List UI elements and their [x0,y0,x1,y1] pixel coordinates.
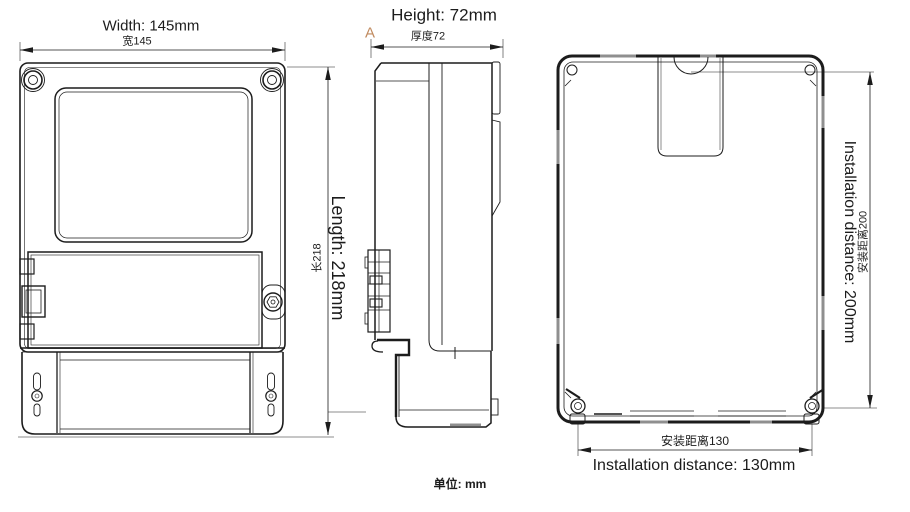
cover-screw-right [266,373,276,416]
arrowhead [490,44,503,50]
terminal-cover [22,352,283,434]
side-bottom-cover [372,340,498,427]
height-dimension-label-cn: 厚度72 [411,32,445,43]
mounting-foot-right [804,389,824,424]
cover-screw-left [32,373,42,416]
front-view [18,42,334,437]
terminal-block-stack [365,250,390,332]
mounting-foot-left [566,389,585,424]
arrowhead [325,422,331,435]
side-body [375,62,500,359]
meter-dimension-drawing: Width: 145mm 宽145 Height: 72mm 厚度72 A Le… [0,0,910,512]
section-marker-a: A [365,26,375,41]
install-200-label-cn: 安装距离200 [859,211,870,273]
install-130-label-en: Installation distance: 130mm [593,458,796,474]
arrowhead [325,67,331,80]
side-clip-upper [492,62,500,114]
hanger-bracket [658,56,723,156]
bottom-edge-slots [594,411,786,416]
unit-note: 单位: mm [434,478,487,490]
hanger-hole-arc [674,57,708,74]
top-left-screw [22,69,45,92]
back-view [558,56,877,456]
seal-screw [262,285,285,319]
install-200-label-en: Installation distance: 200mm [841,141,857,344]
width-dimension-line [20,42,285,61]
arrowhead [371,44,384,50]
front-case-inner-line [25,68,281,349]
top-right-screw [261,69,284,92]
gray-edge-marks [558,56,823,422]
front-case-outline [20,63,285,352]
display-window [55,88,252,242]
length-dimension-line [287,67,366,435]
arrowhead [867,395,873,408]
nameplate-panel [28,252,262,348]
width-dimension-label-cn: 宽145 [122,37,151,48]
height-dimension-label-en: Height: 72mm [391,7,497,24]
arrowhead [799,447,812,453]
arrowhead [272,47,285,53]
back-case-inner-line [564,62,817,416]
side-clip-lower [492,120,500,216]
side-view [287,39,503,435]
length-dimension-label-en: Length: 218mm [329,195,347,320]
arrowhead [20,47,33,53]
arrowhead [867,72,873,85]
back-hole-top-left [567,65,577,75]
corner-tick-marks [565,80,816,398]
drawing-linework [0,0,910,512]
width-dimension-label-en: Width: 145mm [103,19,200,34]
install-130-label-cn: 安装距离130 [661,435,729,447]
length-dimension-label-cn: 长218 [313,243,324,272]
back-case-outline [558,56,823,422]
back-hole-top-right [805,65,815,75]
left-hinges [20,259,45,339]
arrowhead [578,447,591,453]
